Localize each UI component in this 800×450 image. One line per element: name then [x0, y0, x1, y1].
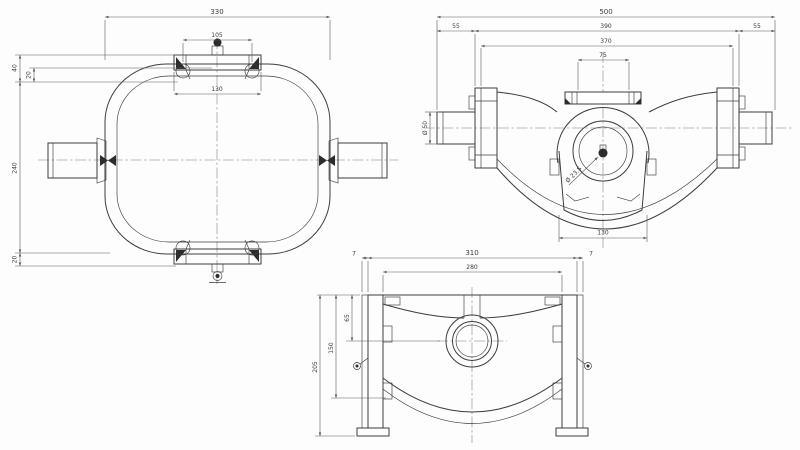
dim-side-overall-width: 310	[465, 249, 478, 257]
dim-shaft-diameter: Ø 50	[422, 121, 429, 135]
dim-bucket-width: 130	[597, 230, 609, 237]
dim-bolt-span: 130	[211, 86, 223, 93]
top-flange-front	[565, 92, 641, 104]
top-cover-plate	[174, 55, 261, 79]
breather-cap-icon	[208, 39, 227, 56]
dim-overall-height: 240	[12, 162, 19, 174]
grease-nipple-left-icon	[354, 358, 369, 370]
dim-lip-right: 7	[589, 251, 593, 258]
foot-right	[556, 428, 588, 436]
dim-lip-left: 7	[352, 251, 356, 258]
centerlines-plan	[38, 38, 398, 284]
dim-skirt-depth: 150	[328, 342, 335, 354]
dim-overall-length: 500	[599, 8, 612, 16]
dim-boss-center: 65	[344, 314, 351, 322]
dim-shaft-right: 55	[753, 23, 761, 30]
dim-center-bore: Ø 23.5	[564, 165, 583, 184]
dim-inner-flange-span: 370	[600, 38, 612, 45]
grease-point-icon	[599, 149, 608, 158]
dim-side-overall-height: 205	[312, 361, 319, 373]
dim-cover-step: 20	[26, 71, 33, 79]
drawing-sheet: 330 105 130 40 20 240 20	[0, 0, 800, 450]
view-top-plan: 330 105 130 40 20 240 20	[12, 8, 399, 284]
bearing-boss-side	[446, 315, 498, 367]
centerlines-side	[437, 287, 507, 443]
bottom-cover-plate	[174, 240, 261, 264]
technical-drawing: 330 105 130 40 20 240 20	[0, 0, 800, 450]
view-front: 500 55 390 55 370 75 Ø 50 Ø 23.5	[422, 8, 792, 250]
housing-outline-side	[357, 295, 588, 436]
grease-nipple-right-icon	[577, 358, 592, 370]
dim-cover-span: 105	[211, 32, 223, 39]
dimensions-plan: 330 105 130 40 20 240 20	[12, 8, 331, 266]
dim-shaft-left: 55	[452, 23, 460, 30]
dim-cover-offset: 40	[12, 64, 19, 72]
drain-plug-icon	[209, 264, 226, 283]
dim-inner-span: 280	[466, 264, 478, 271]
axle-stub-left	[48, 138, 116, 183]
foot-left	[357, 428, 389, 436]
view-side: 7 310 7 280 65 150 205	[312, 249, 593, 443]
dim-neck-span: 75	[599, 52, 607, 59]
axle-stub-right	[319, 138, 387, 183]
dim-bottom-cover-offset: 20	[12, 256, 19, 264]
housing-body-front	[497, 92, 717, 229]
dim-overall-width: 330	[210, 8, 223, 16]
dim-flange-span: 390	[600, 23, 612, 30]
